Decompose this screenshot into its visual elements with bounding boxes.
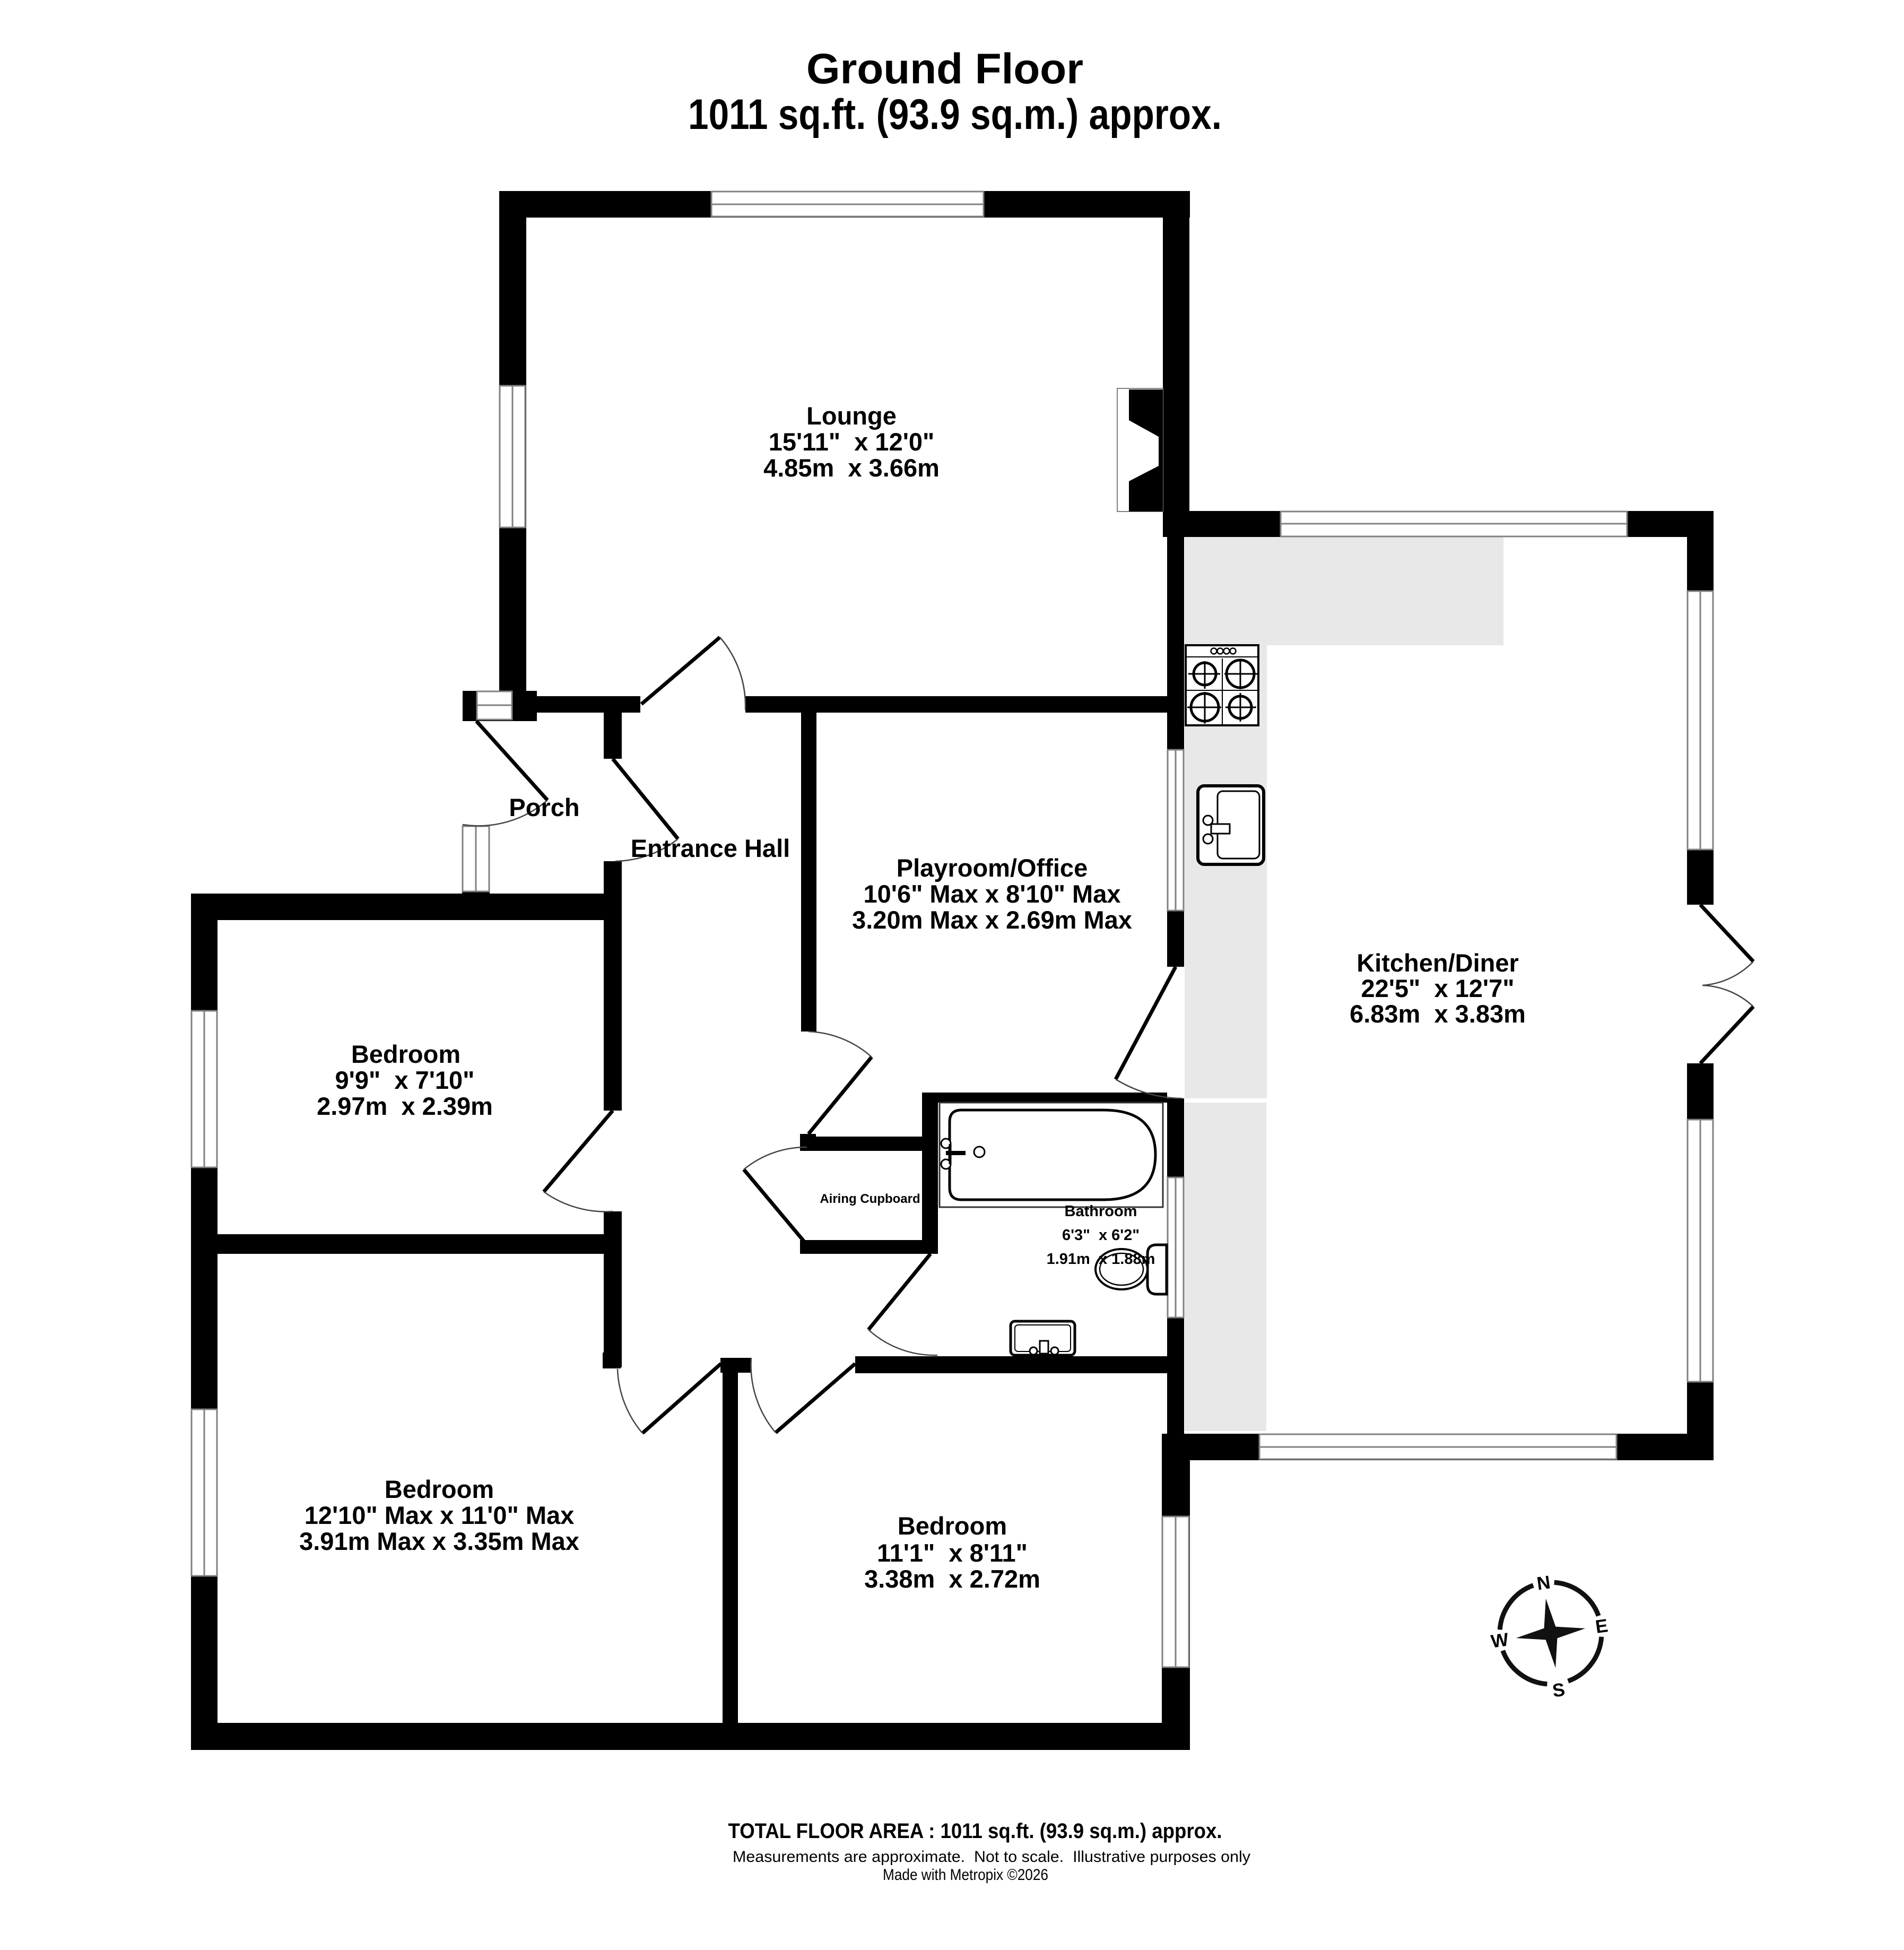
svg-text:3.20m Max x 2.69m Max: 3.20m Max x 2.69m Max — [852, 906, 1132, 934]
svg-text:9'9" x 7'10": 9'9" x 7'10" — [335, 1066, 475, 1094]
svg-text:22'5" x 12'7": 22'5" x 12'7" — [1361, 974, 1514, 1002]
svg-text:6'3" x 6'2": 6'3" x 6'2" — [1062, 1227, 1140, 1244]
svg-text:Entrance Hall: Entrance Hall — [631, 834, 790, 862]
svg-text:2.97m x 2.39m: 2.97m x 2.39m — [317, 1092, 493, 1120]
svg-text:1011 sq.ft. (93.9 sq.m.) appro: 1011 sq.ft. (93.9 sq.m.) approx. — [688, 91, 1222, 138]
svg-text:4.85m x 3.66m: 4.85m x 3.66m — [763, 454, 940, 482]
svg-text:15'11" x 12'0": 15'11" x 12'0" — [769, 428, 935, 456]
svg-text:11'1" x 8'11": 11'1" x 8'11" — [877, 1539, 1028, 1567]
svg-text:Lounge: Lounge — [806, 402, 897, 430]
svg-text:Airing Cupboard: Airing Cupboard — [820, 1192, 920, 1206]
svg-text:Bathroom: Bathroom — [1065, 1203, 1137, 1220]
svg-text:Ground Floor: Ground Floor — [806, 45, 1083, 93]
svg-text:Made with Metropix ©2026: Made with Metropix ©2026 — [883, 1866, 1048, 1884]
svg-text:W: W — [1490, 1629, 1510, 1652]
svg-text:12'10" Max x 11'0" Max: 12'10" Max x 11'0" Max — [305, 1501, 575, 1529]
svg-text:Bedroom: Bedroom — [351, 1040, 460, 1068]
svg-text:Bedroom: Bedroom — [898, 1512, 1007, 1540]
svg-text:6.83m x 3.83m: 6.83m x 3.83m — [1350, 1000, 1526, 1028]
svg-text:N: N — [1535, 1572, 1551, 1594]
svg-text:Porch: Porch — [509, 793, 579, 821]
svg-text:3.38m x 2.72m: 3.38m x 2.72m — [864, 1565, 1040, 1593]
svg-text:Measurements are approximate.: Measurements are approximate. Not to sca… — [733, 1848, 1250, 1866]
svg-text:Kitchen/Diner: Kitchen/Diner — [1357, 949, 1519, 977]
svg-text:Bedroom: Bedroom — [385, 1475, 494, 1503]
svg-text:3.91m Max x 3.35m Max: 3.91m Max x 3.35m Max — [299, 1527, 579, 1555]
svg-text:1.91m x 1.88m: 1.91m x 1.88m — [1047, 1251, 1155, 1268]
svg-text:10'6" Max x 8'10" Max: 10'6" Max x 8'10" Max — [864, 880, 1121, 908]
svg-text:TOTAL FLOOR AREA : 1011 sq.ft.: TOTAL FLOOR AREA : 1011 sq.ft. (93.9 sq.… — [728, 1819, 1222, 1843]
svg-text:Playroom/Office: Playroom/Office — [897, 854, 1088, 882]
